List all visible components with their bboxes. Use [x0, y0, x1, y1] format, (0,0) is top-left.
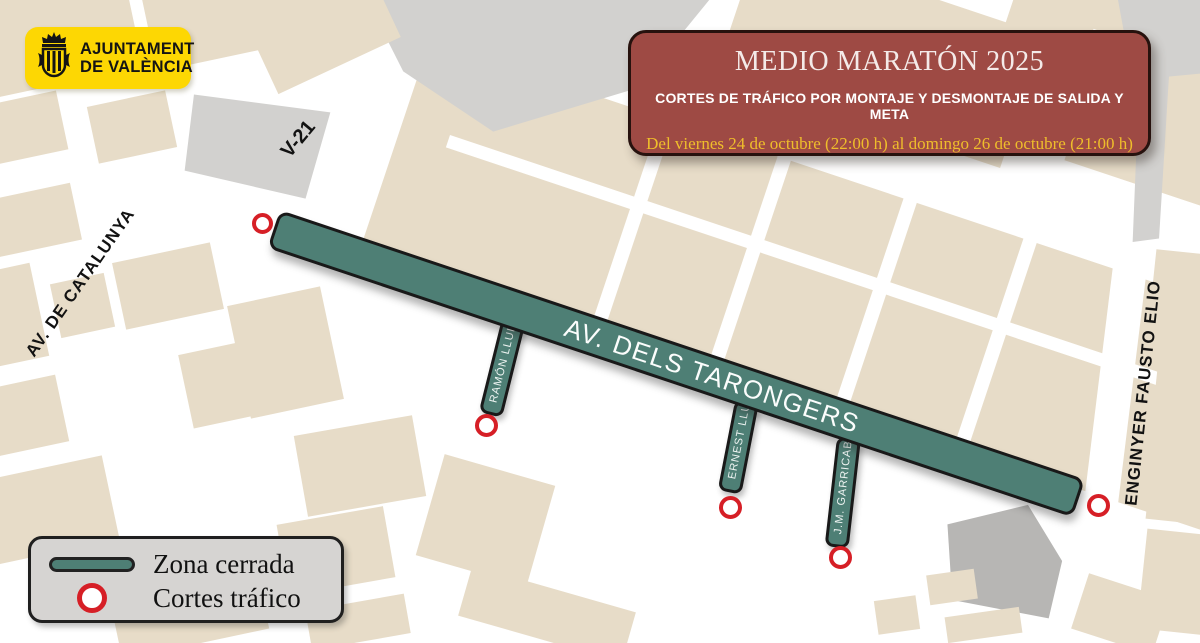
legend-item-zona-cerrada: Zona cerrada	[31, 547, 341, 581]
map-block	[112, 242, 224, 329]
ajuntament-valencia-logo: AJUNTAMENTDE VALÈNCIA	[25, 27, 191, 89]
traffic-closure-map: V-21 AV. DE CATALUNYA ENGINYER FAUSTO EL…	[0, 0, 1200, 643]
map-block	[0, 183, 82, 259]
map-block	[1146, 431, 1200, 525]
banner-subtitle: CORTES DE TRÁFICO POR MONTAJE Y DESMONTA…	[645, 90, 1134, 122]
traffic-cut-marker	[252, 213, 273, 234]
traffic-cut-marker	[475, 414, 498, 437]
event-banner: MEDIO MARATÓN 2025 CORTES DE TRÁFICO POR…	[628, 30, 1151, 156]
map-block	[294, 415, 426, 517]
logo-text: AJUNTAMENTDE VALÈNCIA	[80, 40, 194, 76]
banner-dates: Del viernes 24 de octubre (22:00 h) al d…	[645, 134, 1134, 154]
traffic-cut-marker	[719, 496, 742, 519]
legend-label: Zona cerrada	[153, 549, 295, 580]
map-block	[874, 595, 920, 635]
valencia-crest-icon	[35, 31, 73, 86]
map-block	[1152, 341, 1200, 426]
traffic-cut-marker	[1087, 494, 1110, 517]
map-block	[0, 91, 68, 166]
traffic-cut-marker	[829, 546, 852, 569]
legend: Zona cerrada Cortes tráfico	[28, 536, 344, 623]
map-block	[87, 90, 177, 163]
legend-label: Cortes tráfico	[153, 583, 301, 614]
banner-title: MEDIO MARATÓN 2025	[645, 46, 1134, 78]
map-block	[0, 375, 69, 458]
closed-zone-bar-icon	[31, 557, 153, 572]
traffic-cut-ring-icon	[31, 583, 153, 613]
closed-road-ernest-lluch: ERNEST LLUCH	[718, 400, 759, 495]
legend-item-cortes-trafico: Cortes tráfico	[31, 581, 341, 615]
